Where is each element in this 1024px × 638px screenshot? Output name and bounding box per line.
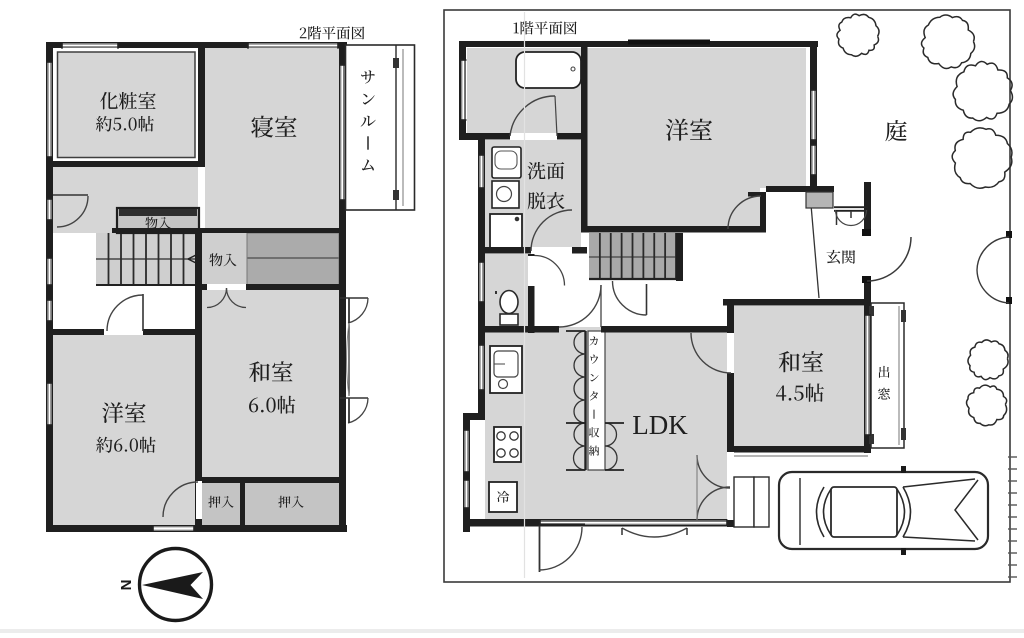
svg-text:N: N: [118, 580, 135, 591]
svg-text:LDK: LDK: [632, 410, 688, 440]
